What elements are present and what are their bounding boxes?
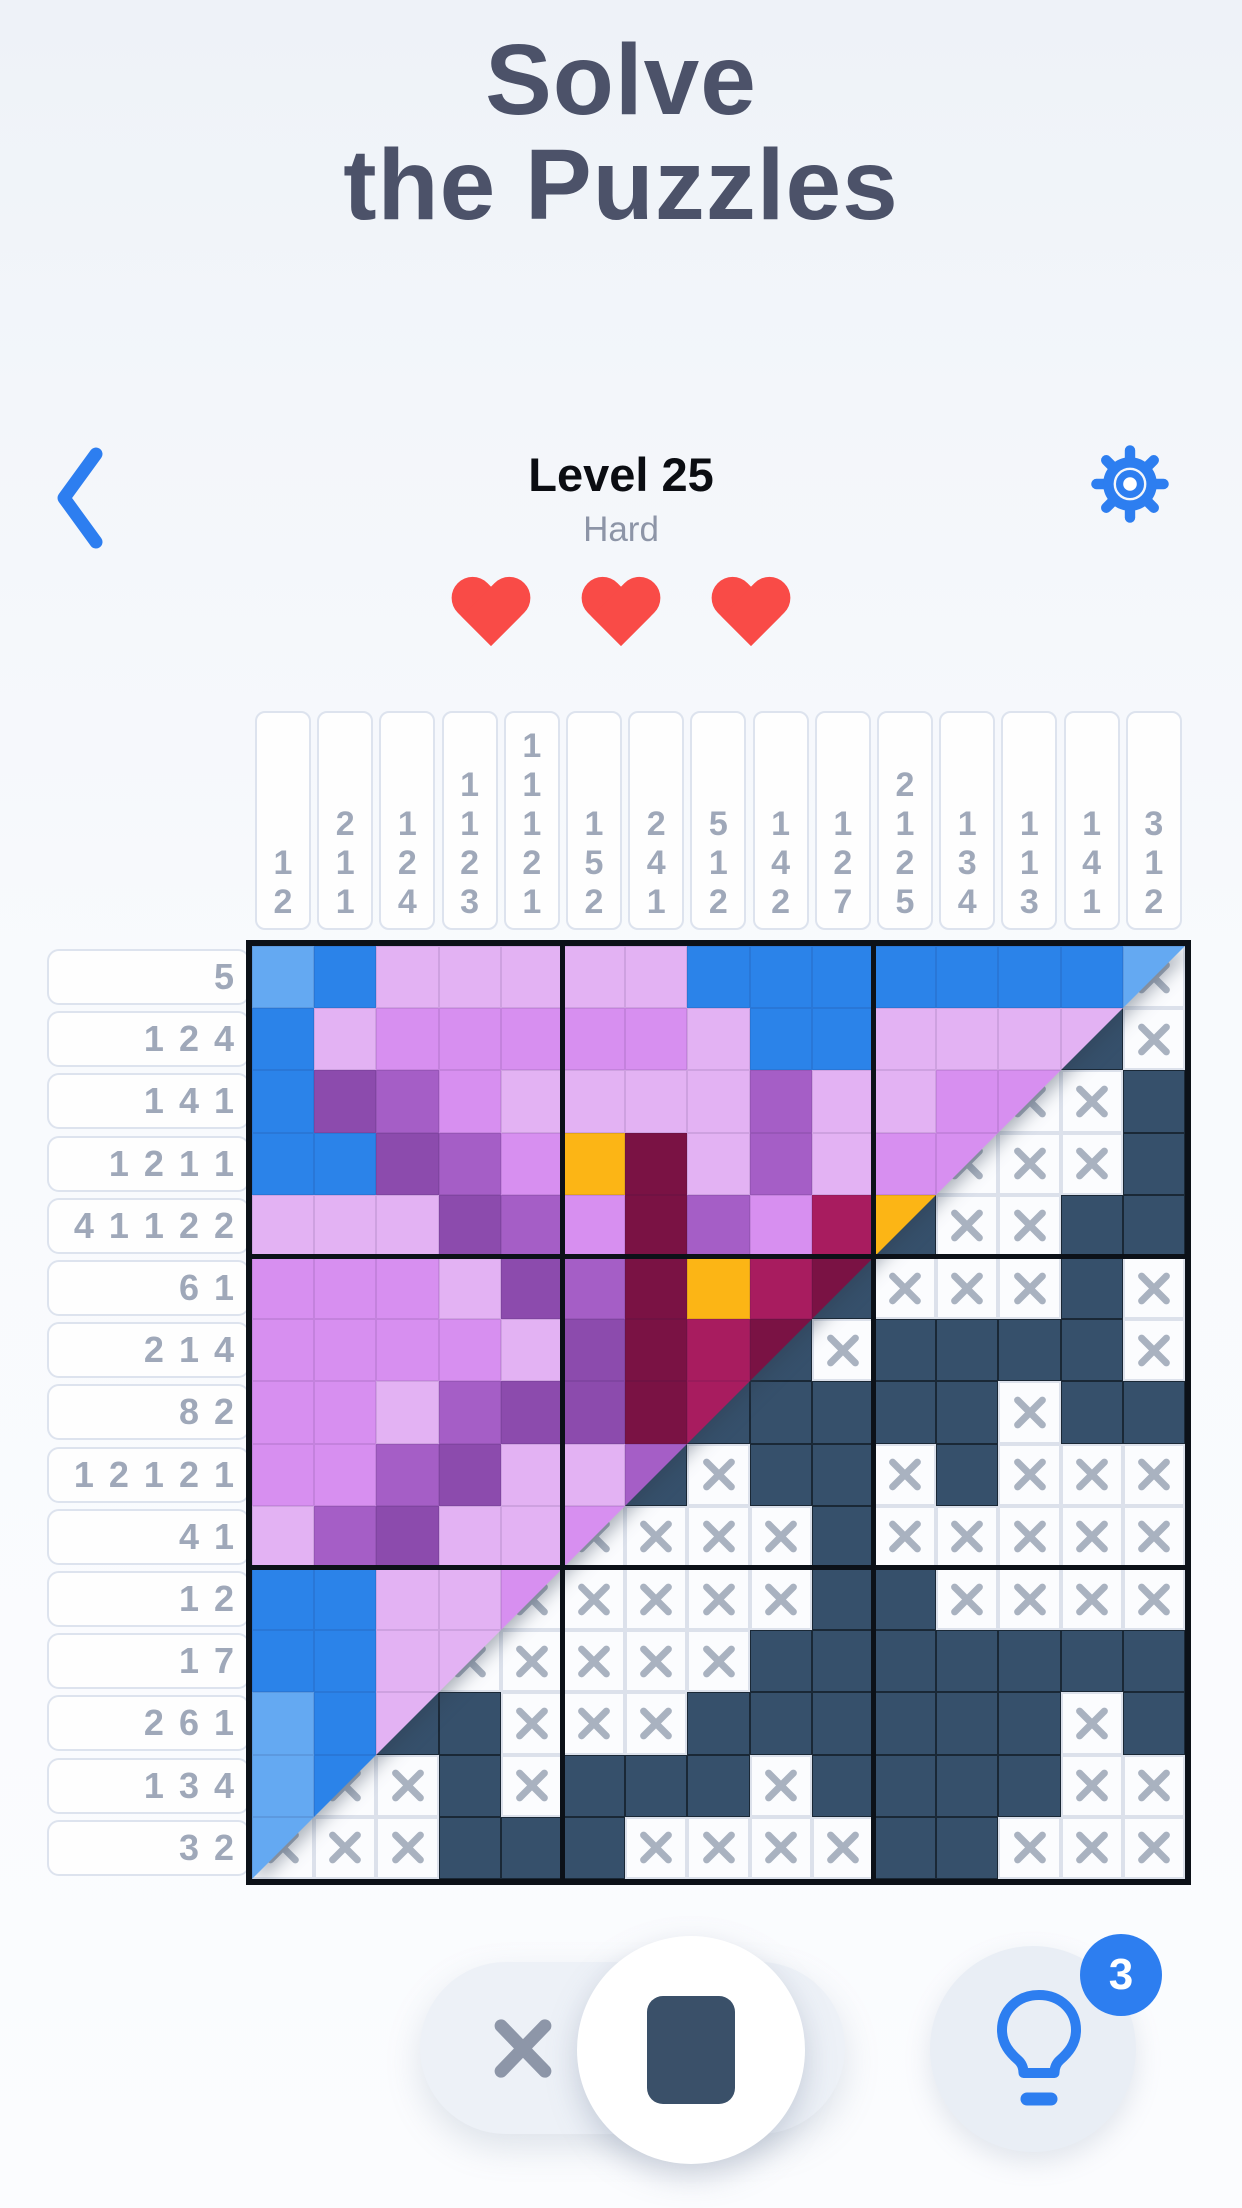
clue-number: 1 (1082, 807, 1101, 841)
grid-cell-r1c12[interactable] (998, 1008, 1060, 1070)
x-mark-icon (1000, 1135, 1058, 1193)
grid-cell-r7c13[interactable] (1061, 1381, 1123, 1443)
grid-cell-r6c10[interactable] (874, 1319, 936, 1381)
grid-cell-r0c11[interactable] (936, 946, 998, 1008)
grid-cell-r0c3[interactable] (439, 946, 501, 1008)
grid-cell-r9c10[interactable] (874, 1506, 936, 1568)
grid-cell-r13c9[interactable] (812, 1755, 874, 1817)
clue-number: 1 (522, 807, 541, 841)
grid-cell-r3c4[interactable] (501, 1133, 563, 1195)
grid-cell-r7c12[interactable] (998, 1381, 1060, 1443)
x-mark-icon (1125, 948, 1183, 1006)
grid-cell-r14c6[interactable] (625, 1817, 687, 1879)
grid-cell-r14c8[interactable] (750, 1817, 812, 1879)
grid-cell-r13c3[interactable] (439, 1755, 501, 1817)
grid-cell-r2c4[interactable] (501, 1070, 563, 1132)
grid-cell-r7c6[interactable] (625, 1381, 687, 1443)
grid-cell-r5c14[interactable] (1123, 1257, 1185, 1319)
grid-cell-r6c5[interactable] (563, 1319, 625, 1381)
grid-cell-r3c0[interactable] (252, 1133, 314, 1195)
grid-cell-r4c5[interactable] (563, 1195, 625, 1257)
grid-cell-r8c10[interactable] (874, 1444, 936, 1506)
clue-number: 5 (214, 959, 234, 995)
x-mark-icon (1063, 1135, 1121, 1193)
grid-cell-r10c12[interactable] (998, 1568, 1060, 1630)
grid-cell-r1c1[interactable] (314, 1008, 376, 1070)
grid-cell-r11c1[interactable] (314, 1630, 376, 1692)
grid-cell-r4c14[interactable] (1123, 1195, 1185, 1257)
grid-cell-r14c10[interactable] (874, 1817, 936, 1879)
clue-number: 1 (398, 807, 417, 841)
grid-cell-r8c2[interactable] (376, 1444, 438, 1506)
grid-cell-r12c2[interactable] (376, 1692, 438, 1754)
grid-cell-r13c12[interactable] (998, 1755, 1060, 1817)
grid-cell-r2c9[interactable] (812, 1070, 874, 1132)
grid-cell-r2c2[interactable] (376, 1070, 438, 1132)
clue-number: 2 (274, 885, 293, 919)
grid-cell-r5c0[interactable] (252, 1257, 314, 1319)
clue-number: 1 (144, 1208, 164, 1244)
grid-cell-r13c10[interactable] (874, 1755, 936, 1817)
col-clue: 141 (1064, 711, 1120, 930)
grid-cell-r8c0[interactable] (252, 1444, 314, 1506)
heart-icon (449, 578, 533, 656)
grid-cell-r1c3[interactable] (439, 1008, 501, 1070)
grid-cell-r8c3[interactable] (439, 1444, 501, 1506)
grid-cell-r2c13[interactable] (1061, 1070, 1123, 1132)
grid-cell-r5c5[interactable] (563, 1257, 625, 1319)
col-clue: 12 (255, 711, 311, 930)
grid-cell-r1c14[interactable] (1123, 1008, 1185, 1070)
x-mark-icon (565, 1570, 623, 1628)
row-clue: 261 (47, 1695, 250, 1751)
grid-cell-r6c14[interactable] (1123, 1319, 1185, 1381)
grid-cell-r0c9[interactable] (812, 946, 874, 1008)
fill-tool-button[interactable] (577, 1936, 805, 2164)
col-clue: 134 (939, 711, 995, 930)
x-mark-icon (689, 1446, 747, 1504)
grid-cell-r1c9[interactable] (812, 1008, 874, 1070)
grid-cell-r4c4[interactable] (501, 1195, 563, 1257)
col-clue: 127 (815, 711, 871, 930)
clue-number: 2 (179, 1457, 199, 1493)
grid-cell-r8c6[interactable] (625, 1444, 687, 1506)
clue-number: 6 (179, 1270, 199, 1306)
grid-cell-r6c1[interactable] (314, 1319, 376, 1381)
grid-cell-r7c1[interactable] (314, 1381, 376, 1443)
grid-cell-r0c7[interactable] (687, 946, 749, 1008)
grid-cell-r14c4[interactable] (501, 1817, 563, 1879)
grid-cell-r11c12[interactable] (998, 1630, 1060, 1692)
x-mark-icon (1000, 1819, 1058, 1877)
grid-cell-r11c13[interactable] (1061, 1630, 1123, 1692)
grid-cell-r0c2[interactable] (376, 946, 438, 1008)
grid-cell-r7c14[interactable] (1123, 1381, 1185, 1443)
grid-cell-r13c7[interactable] (687, 1755, 749, 1817)
grid-cell-r14c2[interactable] (376, 1817, 438, 1879)
grid-cell-r10c13[interactable] (1061, 1568, 1123, 1630)
grid-cell-r12c7[interactable] (687, 1692, 749, 1754)
grid-cell-r11c8[interactable] (750, 1630, 812, 1692)
grid-cell-r9c0[interactable] (252, 1506, 314, 1568)
grid-cell-r1c7[interactable] (687, 1008, 749, 1070)
grid-cell-r9c11[interactable] (936, 1506, 998, 1568)
grid-cell-r9c4[interactable] (501, 1506, 563, 1568)
grid-cell-r5c9[interactable] (812, 1257, 874, 1319)
grid-cell-r3c9[interactable] (812, 1133, 874, 1195)
grid-cell-r12c14[interactable] (1123, 1692, 1185, 1754)
grid-cell-r12c13[interactable] (1061, 1692, 1123, 1754)
grid-cell-r1c10[interactable] (874, 1008, 936, 1070)
col-clue: 152 (566, 711, 622, 930)
clue-number: 7 (214, 1643, 234, 1679)
grid-cell-r14c0[interactable] (252, 1817, 314, 1879)
grid-cell-r5c10[interactable] (874, 1257, 936, 1319)
grid-cell-r3c5[interactable] (563, 1133, 625, 1195)
grid-cell-r12c8[interactable] (750, 1692, 812, 1754)
x-mark-icon (752, 1570, 810, 1628)
clue-number: 2 (896, 846, 915, 880)
grid-cell-r2c5[interactable] (563, 1070, 625, 1132)
grid-cell-r14c5[interactable] (563, 1817, 625, 1879)
grid-cell-r10c0[interactable] (252, 1568, 314, 1630)
grid-cell-r12c12[interactable] (998, 1692, 1060, 1754)
grid-cell-r6c9[interactable] (812, 1319, 874, 1381)
grid-cell-r5c11[interactable] (936, 1257, 998, 1319)
clue-number: 1 (214, 1146, 234, 1182)
grid-cell-r5c3[interactable] (439, 1257, 501, 1319)
grid-cell-r14c9[interactable] (812, 1817, 874, 1879)
grid-cell-r0c12[interactable] (998, 946, 1060, 1008)
grid-cell-r12c6[interactable] (625, 1692, 687, 1754)
grid-cell-r4c1[interactable] (314, 1195, 376, 1257)
grid-cell-r9c2[interactable] (376, 1506, 438, 1568)
grid-cell-r14c11[interactable] (936, 1817, 998, 1879)
page-title: Solve the Puzzles (0, 28, 1242, 238)
grid-cell-r11c2[interactable] (376, 1630, 438, 1692)
grid-cell-r8c12[interactable] (998, 1444, 1060, 1506)
grid-cell-r11c0[interactable] (252, 1630, 314, 1692)
grid-cell-r5c7[interactable] (687, 1257, 749, 1319)
grid-cell-r1c0[interactable] (252, 1008, 314, 1070)
grid-cell-r14c1[interactable] (314, 1817, 376, 1879)
clue-number: 1 (522, 885, 541, 919)
grid-cell-r0c5[interactable] (563, 946, 625, 1008)
grid-cell-r2c7[interactable] (687, 1070, 749, 1132)
x-mark-icon (876, 1508, 934, 1566)
grid-cell-r10c3[interactable] (439, 1568, 501, 1630)
grid-cell-r0c8[interactable] (750, 946, 812, 1008)
clue-number: 5 (709, 807, 728, 841)
grid-cell-r5c6[interactable] (625, 1257, 687, 1319)
clue-number: 3 (958, 846, 977, 880)
grid-cell-r14c7[interactable] (687, 1817, 749, 1879)
x-mark-icon (938, 1135, 996, 1193)
grid-cell-r7c2[interactable] (376, 1381, 438, 1443)
grid-cell-r2c8[interactable] (750, 1070, 812, 1132)
grid-cell-r3c2[interactable] (376, 1133, 438, 1195)
grid-cell-r12c0[interactable] (252, 1692, 314, 1754)
clue-number: 2 (647, 807, 666, 841)
grid-cell-r0c0[interactable] (252, 946, 314, 1008)
x-mark-icon (441, 1632, 499, 1690)
grid-cell-r10c5[interactable] (563, 1568, 625, 1630)
grid-cell-r0c13[interactable] (1061, 946, 1123, 1008)
grid-cell-r11c9[interactable] (812, 1630, 874, 1692)
grid-cell-r3c13[interactable] (1061, 1133, 1123, 1195)
grid-cell-r12c4[interactable] (501, 1692, 563, 1754)
puzzle-board[interactable] (246, 940, 1191, 1885)
clue-number: 1 (109, 1146, 129, 1182)
grid-cell-r1c8[interactable] (750, 1008, 812, 1070)
grid-cell-r6c3[interactable] (439, 1319, 501, 1381)
grid-cell-r13c6[interactable] (625, 1755, 687, 1817)
grid-cell-r6c11[interactable] (936, 1319, 998, 1381)
grid-cell-r3c10[interactable] (874, 1133, 936, 1195)
grid-cell-r0c14[interactable] (1123, 946, 1185, 1008)
grid-cell-r13c2[interactable] (376, 1755, 438, 1817)
grid-cell-r9c1[interactable] (314, 1506, 376, 1568)
grid-cell-r12c11[interactable] (936, 1692, 998, 1754)
grid-cell-r3c3[interactable] (439, 1133, 501, 1195)
settings-button[interactable] (1090, 444, 1170, 524)
grid-cell-r10c7[interactable] (687, 1568, 749, 1630)
grid-cell-r12c1[interactable] (314, 1692, 376, 1754)
grid-cell-r8c14[interactable] (1123, 1444, 1185, 1506)
grid-cell-r13c0[interactable] (252, 1755, 314, 1817)
x-mark-icon (752, 1819, 810, 1877)
grid-cell-r11c7[interactable] (687, 1630, 749, 1692)
grid-cell-r5c13[interactable] (1061, 1257, 1123, 1319)
grid-cell-r9c3[interactable] (439, 1506, 501, 1568)
grid-cell-r4c10[interactable] (874, 1195, 936, 1257)
clue-number: 8 (179, 1394, 199, 1430)
grid-cell-r11c11[interactable] (936, 1630, 998, 1692)
grid-cell-r2c0[interactable] (252, 1070, 314, 1132)
grid-cell-r13c11[interactable] (936, 1755, 998, 1817)
grid-cell-r8c13[interactable] (1061, 1444, 1123, 1506)
grid-cell-r7c3[interactable] (439, 1381, 501, 1443)
clue-number: 4 (647, 846, 666, 880)
clue-number: 4 (74, 1208, 94, 1244)
row-clue: 32 (47, 1820, 250, 1876)
grid-cell-r10c11[interactable] (936, 1568, 998, 1630)
grid-cell-r1c6[interactable] (625, 1008, 687, 1070)
grid-cell-r14c14[interactable] (1123, 1817, 1185, 1879)
grid-cell-r4c6[interactable] (625, 1195, 687, 1257)
clue-number: 1 (179, 1581, 199, 1617)
x-mark-icon (1063, 1694, 1121, 1752)
row-clue: 41122 (47, 1198, 250, 1254)
grid-cell-r8c8[interactable] (750, 1444, 812, 1506)
grid-cell-r6c2[interactable] (376, 1319, 438, 1381)
grid-cell-r0c6[interactable] (625, 946, 687, 1008)
x-mark-icon (1125, 1259, 1183, 1317)
grid-cell-r4c8[interactable] (750, 1195, 812, 1257)
grid-cell-r9c7[interactable] (687, 1506, 749, 1568)
grid-cell-r2c12[interactable] (998, 1070, 1060, 1132)
grid-cell-r2c3[interactable] (439, 1070, 501, 1132)
grid-cell-r2c6[interactable] (625, 1070, 687, 1132)
grid-cell-r11c10[interactable] (874, 1630, 936, 1692)
grid-cell-r4c3[interactable] (439, 1195, 501, 1257)
grid-cell-r12c3[interactable] (439, 1692, 501, 1754)
clue-number: 2 (336, 807, 355, 841)
grid-cell-r9c8[interactable] (750, 1506, 812, 1568)
grid-cell-r13c5[interactable] (563, 1755, 625, 1817)
grid-cell-r10c6[interactable] (625, 1568, 687, 1630)
clue-number: 1 (214, 1457, 234, 1493)
grid-cell-r7c10[interactable] (874, 1381, 936, 1443)
grid-cell-r9c6[interactable] (625, 1506, 687, 1568)
x-mark-icon (814, 1819, 872, 1877)
grid-cell-r8c9[interactable] (812, 1444, 874, 1506)
x-mark-icon (752, 1757, 810, 1815)
grid-cell-r1c5[interactable] (563, 1008, 625, 1070)
grid-cell-r10c8[interactable] (750, 1568, 812, 1630)
grid-cell-r14c3[interactable] (439, 1817, 501, 1879)
row-clue: 41 (47, 1509, 250, 1565)
grid-cell-r6c0[interactable] (252, 1319, 314, 1381)
grid-cell-r9c14[interactable] (1123, 1506, 1185, 1568)
row-clue: 12 (47, 1571, 250, 1627)
grid-cell-r8c11[interactable] (936, 1444, 998, 1506)
grid-cell-r11c6[interactable] (625, 1630, 687, 1692)
grid-cell-r10c2[interactable] (376, 1568, 438, 1630)
grid-cell-r14c12[interactable] (998, 1817, 1060, 1879)
grid-cell-r12c10[interactable] (874, 1692, 936, 1754)
clue-number: 1 (144, 1768, 164, 1804)
grid-cell-r1c4[interactable] (501, 1008, 563, 1070)
x-mark-icon (1000, 1197, 1058, 1255)
grid-cell-r4c12[interactable] (998, 1195, 1060, 1257)
grid-cell-r4c0[interactable] (252, 1195, 314, 1257)
grid-cell-r4c7[interactable] (687, 1195, 749, 1257)
clue-number: 1 (109, 1208, 129, 1244)
grid-cell-r5c1[interactable] (314, 1257, 376, 1319)
grid-cell-r6c12[interactable] (998, 1319, 1060, 1381)
grid-cell-r2c1[interactable] (314, 1070, 376, 1132)
grid-cell-r4c13[interactable] (1061, 1195, 1123, 1257)
grid-cell-r3c8[interactable] (750, 1133, 812, 1195)
grid-cell-r5c8[interactable] (750, 1257, 812, 1319)
x-mark-icon (1125, 1508, 1183, 1566)
grid-cell-r2c10[interactable] (874, 1070, 936, 1132)
grid-cell-r8c1[interactable] (314, 1444, 376, 1506)
grid-cell-r14c13[interactable] (1061, 1817, 1123, 1879)
grid-cell-r10c14[interactable] (1123, 1568, 1185, 1630)
grid-cell-r0c10[interactable] (874, 946, 936, 1008)
clue-number: 4 (771, 846, 790, 880)
grid-cell-r11c4[interactable] (501, 1630, 563, 1692)
grid-cell-r7c11[interactable] (936, 1381, 998, 1443)
grid-cell-r7c9[interactable] (812, 1381, 874, 1443)
x-mark-icon (752, 1508, 810, 1566)
clue-number: 2 (1144, 885, 1163, 919)
grid-cell-r13c1[interactable] (314, 1755, 376, 1817)
grid-cell-r9c5[interactable] (563, 1506, 625, 1568)
x-marker-tool-button[interactable] (455, 1998, 585, 2098)
x-mark-icon (503, 1757, 561, 1815)
grid-cell-r9c12[interactable] (998, 1506, 1060, 1568)
grid-cell-r10c4[interactable] (501, 1568, 563, 1630)
clue-number: 4 (179, 1519, 199, 1555)
grid-cell-r9c13[interactable] (1061, 1506, 1123, 1568)
grid-cell-r1c11[interactable] (936, 1008, 998, 1070)
grid-cell-r6c4[interactable] (501, 1319, 563, 1381)
grid-cell-r5c2[interactable] (376, 1257, 438, 1319)
grid-cell-r13c14[interactable] (1123, 1755, 1185, 1817)
x-mark-icon (1000, 1383, 1058, 1441)
puzzle-grid[interactable] (252, 946, 1185, 1879)
grid-cell-r3c1[interactable] (314, 1133, 376, 1195)
grid-cell-r10c10[interactable] (874, 1568, 936, 1630)
clue-number: 1 (1020, 807, 1039, 841)
grid-cell-r12c9[interactable] (812, 1692, 874, 1754)
grid-cell-r10c1[interactable] (314, 1568, 376, 1630)
grid-cell-r2c11[interactable] (936, 1070, 998, 1132)
x-mark-icon (627, 1819, 685, 1877)
grid-cell-r4c9[interactable] (812, 1195, 874, 1257)
grid-cell-r9c9[interactable] (812, 1506, 874, 1568)
grid-cell-r6c13[interactable] (1061, 1319, 1123, 1381)
x-mark-icon (378, 1819, 436, 1877)
grid-cell-r13c4[interactable] (501, 1755, 563, 1817)
clue-number: 1 (460, 807, 479, 841)
grid-cell-r8c7[interactable] (687, 1444, 749, 1506)
x-mark-icon (378, 1757, 436, 1815)
grid-cell-r3c7[interactable] (687, 1133, 749, 1195)
grid-cell-r6c7[interactable] (687, 1319, 749, 1381)
grid-cell-r1c2[interactable] (376, 1008, 438, 1070)
grid-cell-r4c2[interactable] (376, 1195, 438, 1257)
x-mark-icon (316, 1819, 374, 1877)
grid-cell-r0c1[interactable] (314, 946, 376, 1008)
grid-cell-r7c5[interactable] (563, 1381, 625, 1443)
grid-cell-r13c8[interactable] (750, 1755, 812, 1817)
grid-cell-r7c7[interactable] (687, 1381, 749, 1443)
grid-cell-r12c5[interactable] (563, 1692, 625, 1754)
grid-cell-r3c14[interactable] (1123, 1133, 1185, 1195)
grid-cell-r5c12[interactable] (998, 1257, 1060, 1319)
grid-cell-r6c6[interactable] (625, 1319, 687, 1381)
grid-cell-r6c8[interactable] (750, 1319, 812, 1381)
grid-cell-r1c13[interactable] (1061, 1008, 1123, 1070)
x-mark-icon (627, 1632, 685, 1690)
x-mark-icon (689, 1819, 747, 1877)
x-mark-icon (254, 1819, 312, 1877)
col-clue: 512 (690, 711, 746, 930)
grid-cell-r7c4[interactable] (501, 1381, 563, 1443)
grid-cell-r3c11[interactable] (936, 1133, 998, 1195)
grid-cell-r3c12[interactable] (998, 1133, 1060, 1195)
grid-cell-r5c4[interactable] (501, 1257, 563, 1319)
grid-cell-r4c11[interactable] (936, 1195, 998, 1257)
grid-cell-r0c4[interactable] (501, 946, 563, 1008)
grid-cell-r11c3[interactable] (439, 1630, 501, 1692)
grid-cell-r8c5[interactable] (563, 1444, 625, 1506)
grid-cell-r11c14[interactable] (1123, 1630, 1185, 1692)
grid-cell-r8c4[interactable] (501, 1444, 563, 1506)
clue-number: 1 (1082, 885, 1101, 919)
grid-cell-r10c9[interactable] (812, 1568, 874, 1630)
grid-cell-r2c14[interactable] (1123, 1070, 1185, 1132)
grid-cell-r3c6[interactable] (625, 1133, 687, 1195)
grid-cell-r13c13[interactable] (1061, 1755, 1123, 1817)
grid-cell-r7c8[interactable] (750, 1381, 812, 1443)
grid-cell-r11c5[interactable] (563, 1630, 625, 1692)
grid-cell-r7c0[interactable] (252, 1381, 314, 1443)
